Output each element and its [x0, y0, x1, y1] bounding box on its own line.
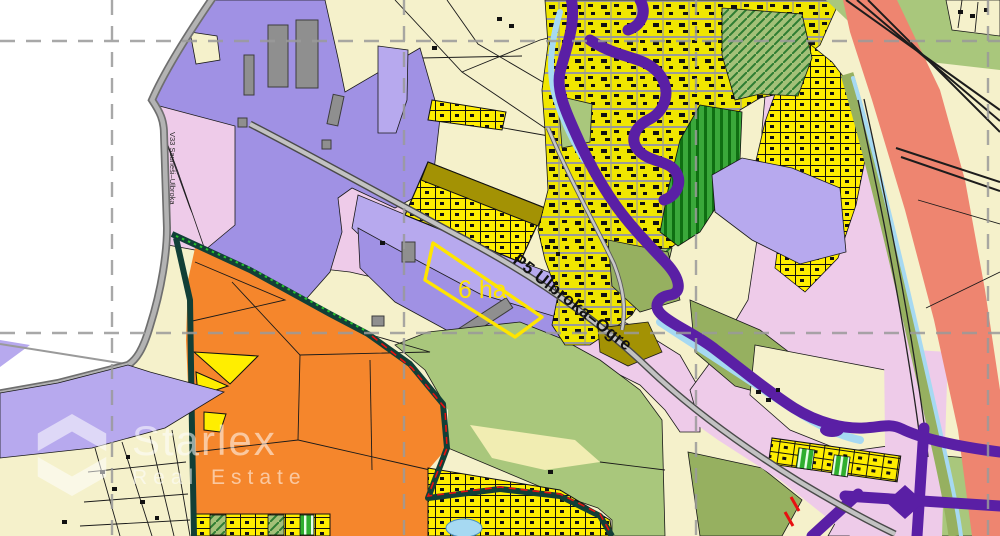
road-label-v33: V33 Saurieši–Ulbroka — [168, 132, 177, 205]
pond — [446, 519, 482, 536]
zone-forest-hatch — [722, 8, 812, 100]
highlight-area-label: 6 ha — [458, 276, 507, 304]
zoning-map: 6 ha P5 Ulbroka–Ogre V33 Saurieši–Ulbrok… — [0, 0, 1000, 536]
zoning-map-viewport[interactable]: 6 ha P5 Ulbroka–Ogre V33 Saurieši–Ulbrok… — [0, 0, 1000, 536]
strip-parcels-bottomleft — [196, 514, 330, 536]
